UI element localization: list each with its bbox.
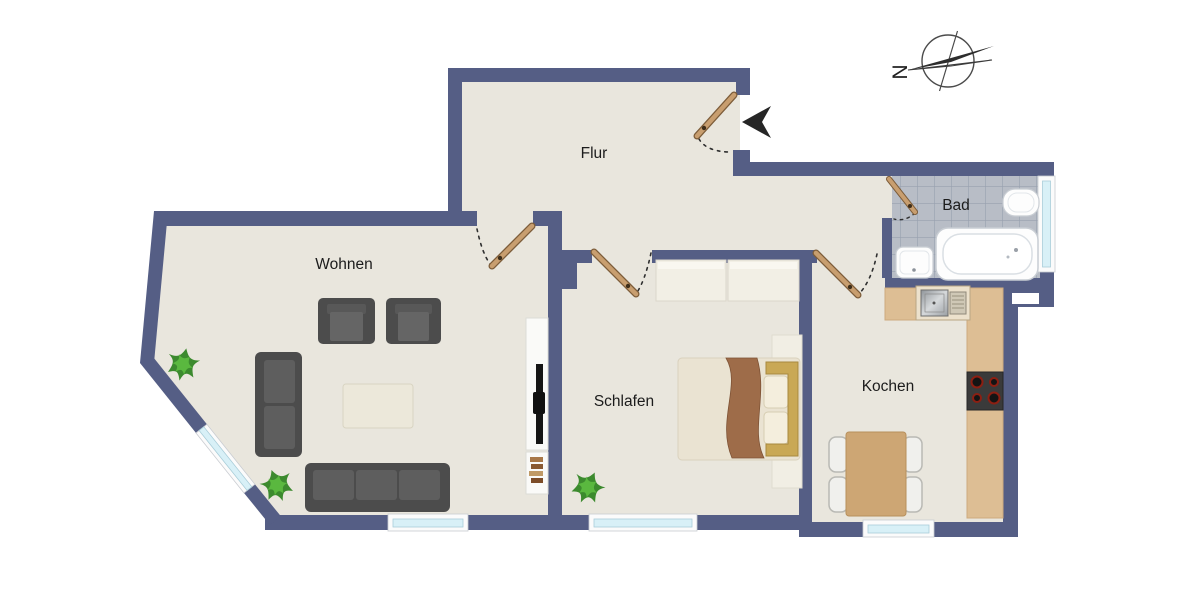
- kochen-window: [863, 520, 934, 537]
- bookshelf: [526, 452, 548, 494]
- washbasin: [896, 247, 933, 278]
- wohnen-bottom-window: [388, 514, 468, 531]
- room-label-wohnen: Wohnen: [315, 256, 372, 273]
- armchair: [386, 298, 441, 344]
- dining-table: [846, 432, 906, 516]
- floorplan-canvas: Flur Wohnen Schlafen Kochen Bad N: [0, 0, 1200, 600]
- entrance-arrow-icon: [742, 106, 771, 138]
- wardrobe: [656, 260, 799, 301]
- coffee-table: [343, 384, 413, 428]
- room-label-flur: Flur: [581, 145, 608, 162]
- sofa-2seat: [255, 352, 302, 457]
- double-bed: [678, 358, 800, 460]
- north-compass-icon: N: [888, 31, 995, 91]
- room-label-bad: Bad: [942, 197, 970, 214]
- room-label-kochen: Kochen: [862, 378, 915, 395]
- tv-board: [526, 318, 548, 450]
- wall-niche: [1012, 293, 1039, 304]
- chair: [829, 477, 848, 512]
- toilet: [1003, 189, 1039, 216]
- chair: [829, 437, 848, 472]
- armchair: [318, 298, 375, 344]
- schlafen-window: [589, 514, 697, 531]
- floorplan-svg: Flur Wohnen Schlafen Kochen Bad N: [0, 0, 1200, 600]
- blanket: [726, 358, 764, 458]
- sofa-3seat: [305, 463, 450, 512]
- compass-north-letter: N: [888, 64, 911, 79]
- room-label-schlafen: Schlafen: [594, 393, 654, 410]
- stove: [967, 372, 1003, 410]
- pillow: [764, 376, 788, 408]
- pillow: [764, 412, 788, 444]
- bathtub: [936, 228, 1038, 280]
- bad-window: [1038, 176, 1055, 272]
- kitchen-sink: [916, 286, 970, 320]
